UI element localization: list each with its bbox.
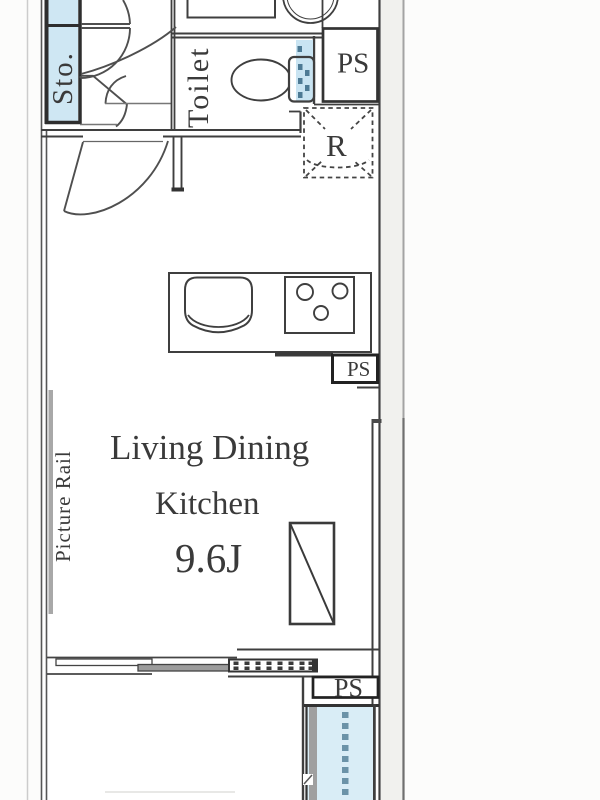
svg-text:PS: PS [347, 357, 370, 381]
svg-text:R: R [326, 128, 347, 163]
svg-text:Kitchen: Kitchen [155, 486, 259, 522]
svg-text:PS: PS [337, 48, 369, 80]
svg-text:9.6J: 9.6J [175, 535, 242, 581]
svg-text:Toilet: Toilet [182, 46, 215, 128]
svg-text:Sto.: Sto. [47, 51, 79, 105]
svg-text:Living Dining: Living Dining [110, 428, 309, 467]
svg-text:Picture Rail: Picture Rail [51, 450, 75, 562]
svg-text:PS: PS [334, 674, 363, 703]
